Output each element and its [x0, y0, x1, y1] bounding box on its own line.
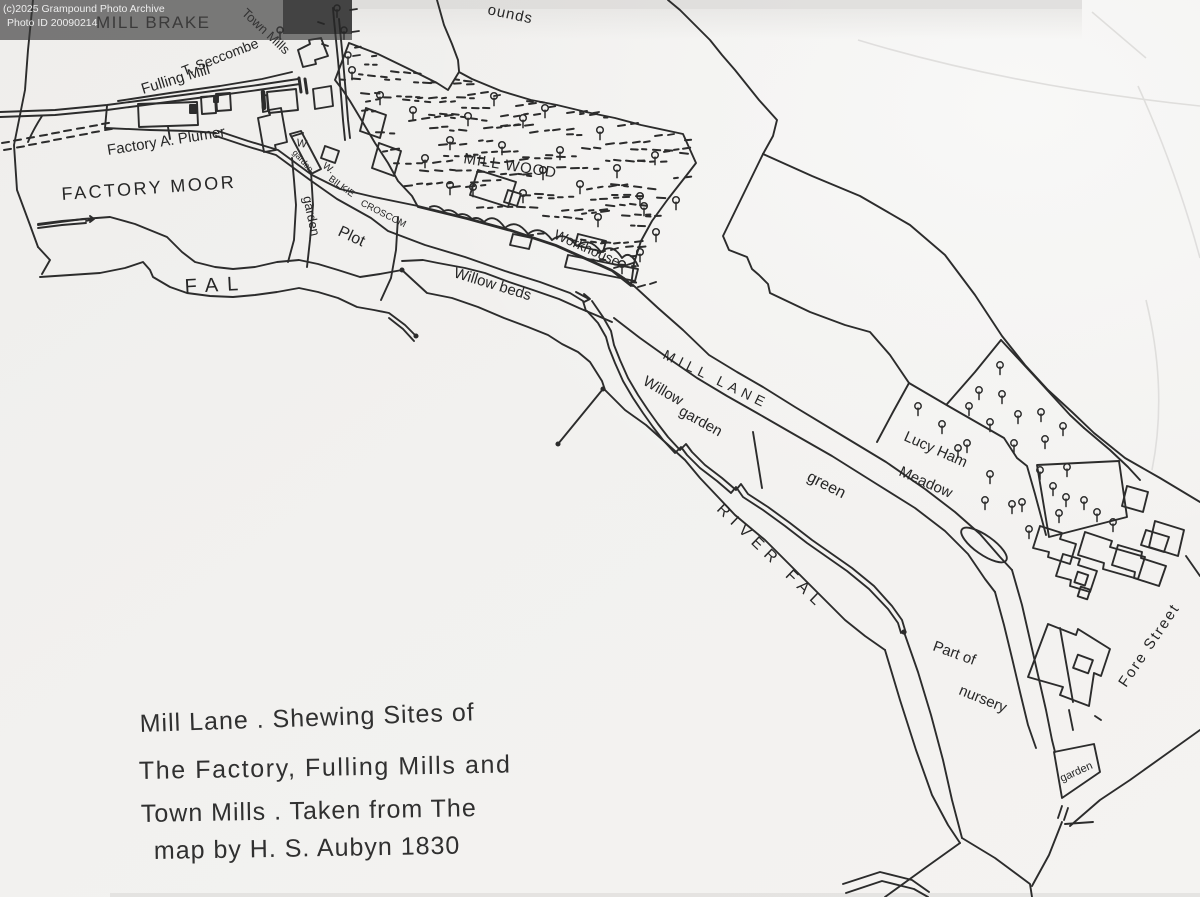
svg-text:map by H. S. Aubyn 1830: map by H. S. Aubyn 1830 — [154, 832, 461, 865]
svg-text:MILL BRAKE: MILL BRAKE — [96, 13, 211, 32]
svg-text:Photo ID 20090214: Photo ID 20090214 — [7, 17, 98, 29]
svg-text:(c)2025 Grampound Photo Archiv: (c)2025 Grampound Photo Archive — [3, 3, 165, 15]
svg-text:Town Mills . Taken from The: Town Mills . Taken from The — [141, 794, 477, 828]
svg-text:FAL: FAL — [184, 273, 248, 298]
